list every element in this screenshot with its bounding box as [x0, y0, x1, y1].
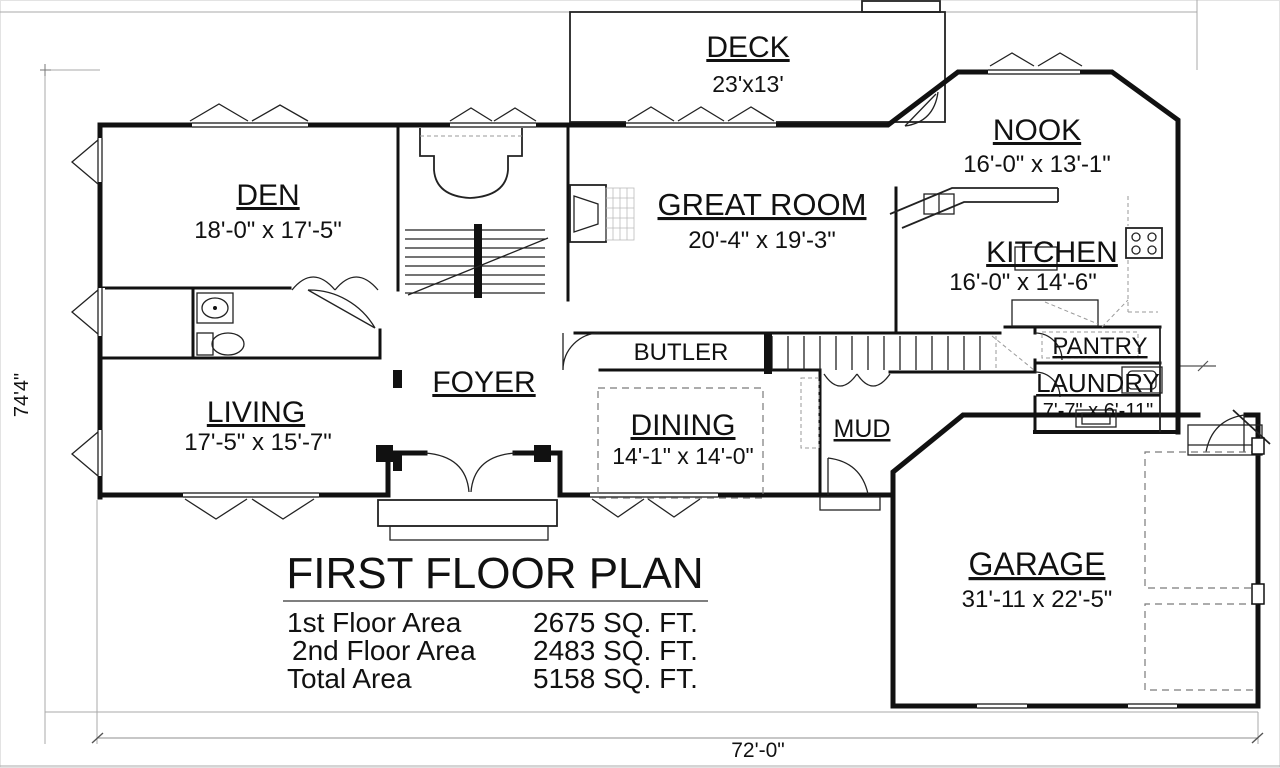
- room-label-pantry: PANTRY: [1052, 333, 1147, 360]
- left-dimension: 74'4": [11, 373, 33, 417]
- room-label-kitchen: KITCHEN: [986, 236, 1118, 269]
- bottom-dimension: 72'-0": [731, 739, 785, 762]
- room-label-nook: NOOK: [993, 114, 1081, 147]
- room-label-butler: BUTLER: [634, 339, 729, 366]
- room-label-great-room: GREAT ROOM: [658, 187, 867, 222]
- room-label-living: LIVING: [207, 396, 305, 429]
- room-label-dining: DINING: [631, 409, 736, 442]
- room-label-laundry: LAUNDRY: [1036, 368, 1160, 398]
- area-row-label: 2nd Floor Area: [292, 635, 476, 666]
- room-label-mud: MUD: [834, 415, 891, 443]
- room-label-garage: GARAGE: [969, 546, 1106, 582]
- room-size-dining: 14'-1" x 14'-0": [612, 443, 753, 469]
- room-size-laundry: 7'-7" x 6'-11": [1043, 400, 1153, 422]
- room-size-living: 17'-5" x 15'-7": [184, 429, 332, 456]
- floor-plan-drawing: DECK 23'x13' NOOK 16'-0" x 13'-1" DEN 18…: [0, 0, 1280, 768]
- room-label-deck: DECK: [706, 31, 789, 64]
- room-size-kitchen: 16'-0" x 14'-6": [949, 269, 1097, 296]
- room-size-deck: 23'x13': [712, 71, 783, 97]
- area-row-value: 2483 SQ. FT.: [533, 635, 698, 666]
- room-size-garage: 31'-11 x 22'-5": [962, 586, 1113, 613]
- plan-title: FIRST FLOOR PLAN: [286, 549, 703, 598]
- room-size-nook: 16'-0" x 13'-1": [963, 151, 1111, 178]
- area-row-value: 5158 SQ. FT.: [533, 663, 698, 694]
- foyer-pilaster: [393, 455, 402, 471]
- area-row-label: 1st Floor Area: [287, 607, 462, 638]
- area-row-label: Total Area: [287, 663, 412, 694]
- room-label-den: DEN: [236, 179, 299, 212]
- area-row-value: 2675 SQ. FT.: [533, 607, 698, 638]
- room-size-great-room: 20'-4" x 19'-3": [688, 227, 836, 254]
- room-label-foyer: FOYER: [432, 366, 535, 399]
- room-size-den: 18'-0" x 17'-5": [194, 217, 342, 244]
- floor-plan-page: DECK 23'x13' NOOK 16'-0" x 13'-1" DEN 18…: [0, 0, 1280, 768]
- foyer-pilaster: [393, 370, 402, 388]
